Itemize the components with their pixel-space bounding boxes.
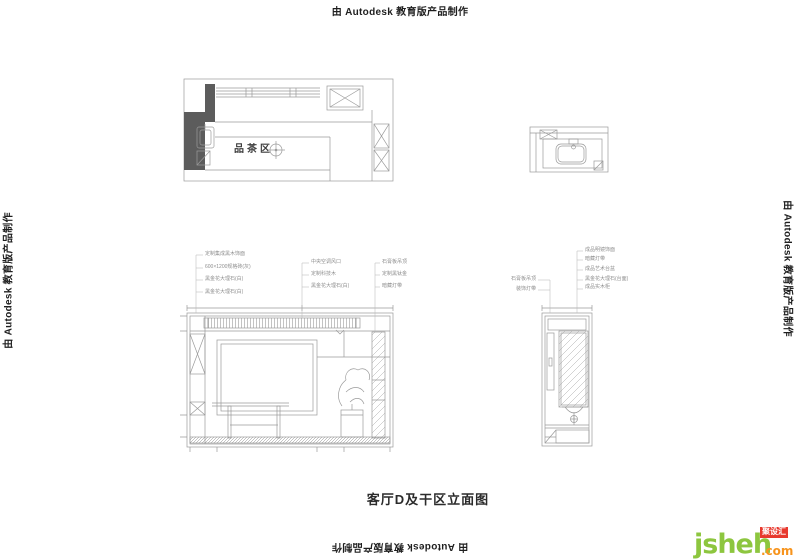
material-annotation: 成品实木柜 <box>585 285 610 290</box>
material-annotation: 600×1200规格砖(灰) <box>205 265 251 270</box>
material-annotation: 成品明镜饰面 <box>585 248 615 253</box>
material-annotation: 定制集成黑木饰面 <box>205 252 245 257</box>
watermark-bottom: 由 Autodesk 教育版产品制作 <box>0 541 800 556</box>
room-label-tea-area: 品茶区 <box>234 140 273 155</box>
drawing-title: 客厅D及干区立面图 <box>328 489 528 508</box>
plan-tea-area-drawing <box>184 79 393 181</box>
material-annotation: 黑金花大理石(白) <box>205 290 243 295</box>
cad-linework <box>0 0 800 559</box>
material-annotation: 装饰灯带 <box>496 287 536 292</box>
jsheh-logo-tld: .com <box>761 544 793 558</box>
material-annotation: 黑金花大理石(台面) <box>585 277 628 282</box>
jsheh-logo-badge: 聚设汇 <box>760 527 788 538</box>
watermark-top: 由 Autodesk 教育版产品制作 <box>0 3 800 18</box>
material-annotation: 黑金花大理石(白) <box>311 284 349 289</box>
elevation-vanity-drawing <box>542 305 592 446</box>
material-annotation: 成品艺术台盆 <box>585 267 615 272</box>
material-annotation: 暗藏灯带 <box>585 257 605 262</box>
jsheh-logo: jsheh 聚设汇 .com <box>694 526 796 557</box>
material-annotation: 中央空调风口 <box>311 260 341 265</box>
material-annotation: 定制科技木 <box>311 272 336 277</box>
material-annotation: 黑金花大理石(白) <box>205 277 243 282</box>
watermark-left: 由 Autodesk 教育版产品制作 <box>0 206 15 356</box>
plan-dry-area-drawing <box>530 127 608 172</box>
material-annotation: 定制黑钛金 <box>382 272 407 277</box>
cad-sheet: 由 Autodesk 教育版产品制作 由 Autodesk 教育版产品制作 由 … <box>0 0 800 559</box>
material-annotation: 石膏板吊顶 <box>496 277 536 282</box>
material-annotation: 暗藏灯带 <box>382 284 402 289</box>
watermark-right: 由 Autodesk 教育版产品制作 <box>782 194 797 344</box>
material-annotation: 石膏板吊顶 <box>382 260 407 265</box>
elevation-main-drawing <box>180 305 393 452</box>
